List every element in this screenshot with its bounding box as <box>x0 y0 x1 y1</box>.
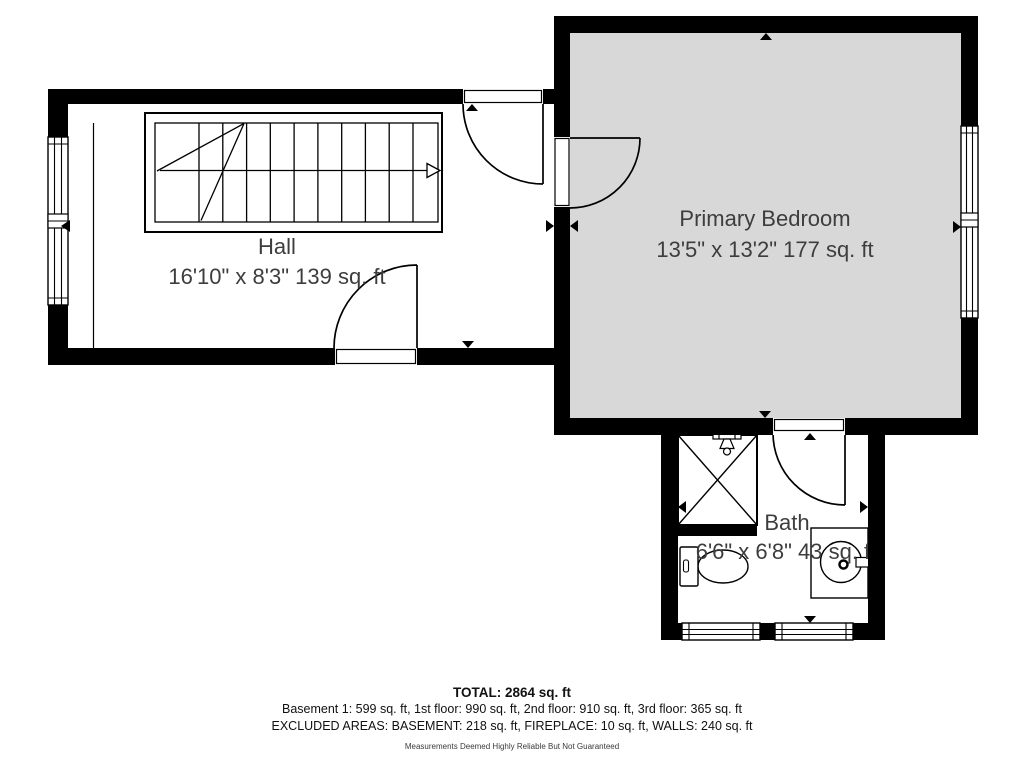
primary-bedroom-name-label: Primary Bedroom <box>679 206 850 231</box>
arrow-down-icon <box>462 341 474 348</box>
bath-left-wall <box>661 418 678 640</box>
shower-half-wall <box>678 525 757 536</box>
hall-name-label: Hall <box>258 234 296 259</box>
primary-bedroom-dimensions-label: 13'5" x 13'2" 177 sq. ft <box>656 237 873 262</box>
arrow-up-icon <box>466 104 478 111</box>
hall-dimensions-label: 16'10" x 8'3" 139 sq. ft <box>168 264 385 289</box>
floor-plan-drawing: Hall 16'10" x 8'3" 139 sq. ft Primary Be… <box>0 0 1024 768</box>
hall-bottom-wall <box>48 348 570 365</box>
bath-door-swing-icon <box>773 433 845 505</box>
stairs-inner-box <box>155 123 438 222</box>
footer-disclaimer: Measurements Deemed Highly Reliable But … <box>0 742 1024 752</box>
stair-treads <box>199 123 413 222</box>
floor-plan-page: Hall 16'10" x 8'3" 139 sq. ft Primary Be… <box>0 0 1024 768</box>
toilet-flush-button <box>684 560 689 572</box>
footer-excluded-areas: EXCLUDED AREAS: BASEMENT: 218 sq. ft, FI… <box>0 718 1024 735</box>
bedroom-left-wall <box>554 16 570 435</box>
hall-top-door-opening <box>463 89 543 104</box>
hall-bottom-door-opening <box>335 348 417 365</box>
stairs-icon <box>145 113 442 232</box>
hall-window-icon <box>48 137 68 305</box>
footer-total: TOTAL: 2864 sq. ft <box>0 684 1024 701</box>
bath-right-wall <box>868 418 885 640</box>
bath-dimensions-label: 6'6" x 6'8" 43 sq. ft <box>696 539 877 564</box>
bedroom-window-icon <box>961 126 978 318</box>
shower-icon <box>678 431 757 536</box>
bath-door-opening <box>773 418 845 435</box>
bath-name-label: Bath <box>764 510 809 535</box>
hall-top-door-swing-icon <box>463 104 543 184</box>
arrow-down-icon <box>804 616 816 623</box>
bedroom-bottom-wall <box>554 418 978 435</box>
bedroom-top-wall <box>554 16 978 33</box>
arrow-right-icon <box>546 220 554 232</box>
footer-floor-areas: Basement 1: 599 sq. ft, 1st floor: 990 s… <box>0 701 1024 718</box>
stairs-break-line <box>157 124 244 172</box>
bedroom-door-opening <box>554 137 570 207</box>
bath-window-right-icon <box>775 623 853 640</box>
bath-window-left-icon <box>682 623 760 640</box>
arrow-right-icon <box>860 501 868 513</box>
footer-summary: TOTAL: 2864 sq. ft Basement 1: 599 sq. f… <box>0 684 1024 752</box>
